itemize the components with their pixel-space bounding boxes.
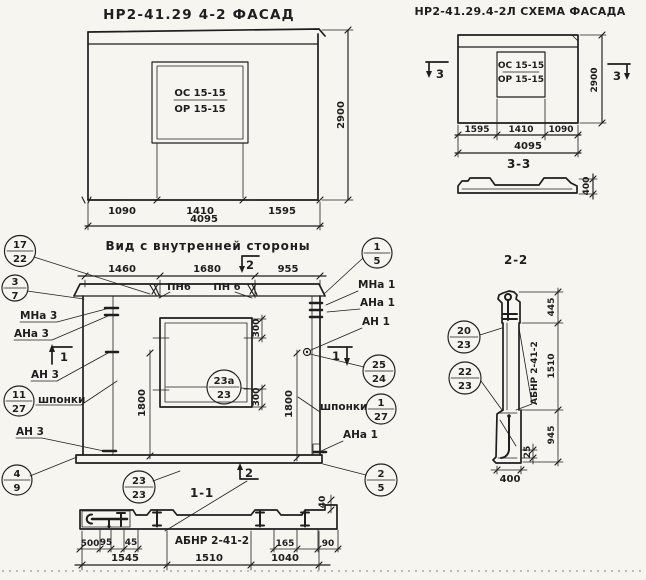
callout-num: 17 [13,240,27,251]
inner-view-title: Вид с внутренней стороны [106,239,311,253]
facade-window-label-bottom: ОР 15-15 [174,104,225,115]
dim-1545: 1545 [111,553,139,564]
dim-400: 400 [500,474,521,485]
schema-window-label-bottom: ОР 15-15 [498,75,544,85]
facade-drawing: НР2-41.29 4-2 ФАСАД ОС 15-15 ОР 15-15 10… [82,7,353,230]
callout-22-23: 22 23 [449,362,481,394]
callout-23-23: 23 23 [123,471,155,503]
schema-section-marker-right: 3 [608,64,630,83]
section-3-3: 3-3 400 [458,157,597,199]
section-2-2-leaders [480,328,502,410]
callout-1-27: 1 27 [366,394,396,424]
label-mna3: МНа 3 [20,310,57,322]
label-mna1: МНа 1 [358,279,395,291]
section-3-3-dim-400: 400 [582,177,592,196]
callout-den: 23 [457,340,471,351]
facade-dim-height: 2900 [336,101,347,129]
schema-drawing: НР2-41.29.4-2Л СХЕМА ФАСАДА ОС 15-15 ОР … [414,5,630,157]
schema-window-label-top: ОС 15-15 [498,61,544,71]
dim-445: 445 [547,298,557,317]
dim-25: 25 [523,446,533,459]
callout-num: 23 [132,476,146,487]
schema-dim-left: 1595 [464,125,489,135]
dim-45: 45 [125,538,138,548]
inner-marker-top-label: 2 [246,258,254,272]
section-1-1-part-label: АБНР 2-41-2 [175,535,249,547]
inner-view-panel-outline [74,284,325,463]
label-ana1: АНа 1 [360,297,395,309]
section-1-1-profile [80,505,337,529]
callout-den: 23 [217,390,231,401]
facade-dim-right: 1595 [268,206,296,217]
callout-den: 5 [378,483,385,494]
drawing-sheet: НР2-41.29 4-2 ФАСАД ОС 15-15 ОР 15-15 10… [0,0,646,580]
drawing-canvas: НР2-41.29 4-2 ФАСАД ОС 15-15 ОР 15-15 10… [0,0,646,580]
schema-section-marker-left: 3 [426,62,448,81]
dim-500: 500 [81,539,100,549]
section-3-3-dimension: 400 [579,174,597,199]
section-1-1-title: 1-1 [190,486,214,500]
callout-num: 1 [374,242,381,253]
dim-945: 945 [547,426,557,445]
callout-1-5: 1 5 [362,238,392,268]
inner-view-marker-top: 2 [239,256,259,273]
callout-num: 4 [14,469,21,480]
section-3-3-profile [458,178,577,193]
dim-165: 165 [276,539,295,549]
callout-num: 3 [12,277,19,288]
inner-view-window-300-dims: 300 300 [252,315,266,410]
section-1-1: 1-1 АБНР 2-41-2 40 500 95 45 [75,486,341,570]
inner-view-top-dimensions: 1460 1680 955 [78,264,326,298]
callout-den: 27 [374,412,388,423]
callout-11-27: 11 27 [4,386,34,416]
label-shponki-right: шпонки [320,401,367,413]
inner-view-window [153,318,266,407]
callout-23a-23: 23а 23 [207,370,241,404]
callout-num: 25 [372,360,386,371]
dim-90: 90 [322,539,335,549]
section-2-2-part-label: АБНР 2-41-2 [530,341,540,405]
schema-dim-total: 4095 [514,141,542,152]
callout-num: 20 [457,326,471,337]
section-3-3-title: 3-3 [507,157,531,171]
facade-dim-total: 4095 [190,214,218,225]
callout-den: 22 [13,254,27,265]
callout-den: 27 [12,404,26,415]
schema-marker-right-label: 3 [613,69,621,83]
callout-num: 1 [378,398,385,409]
inner-dim-1800-right: 1800 [284,390,295,418]
label-an3-upper: АН 3 [31,369,59,381]
inner-marker-bottom-label: 2 [245,466,253,480]
callout-4-9: 4 9 [2,465,32,495]
inner-dim-top-left: 1460 [108,264,136,275]
dim-1510: 1510 [195,553,223,564]
callout-den: 23 [458,381,472,392]
callout-num: 11 [12,390,26,401]
schema-marker-left-label: 3 [436,67,444,81]
callout-2-5: 2 5 [365,464,397,496]
facade-window: ОС 15-15 ОР 15-15 [152,62,248,143]
inner-view-marker-left: 1 [49,344,72,364]
inner-dim-top-mid: 1680 [193,264,221,275]
schema-dim-right: 1090 [548,125,573,135]
callout-den: 24 [372,374,386,385]
callout-3-7: 3 7 [2,275,28,302]
inner-dim-top-right: 955 [278,264,299,275]
callout-den: 9 [14,483,21,494]
window-dim-300-bottom: 300 [252,388,262,407]
facade-window-label-top: ОС 15-15 [174,88,225,99]
callout-17-22: 17 22 [5,236,36,267]
dim-40: 40 [318,496,328,509]
facade-dim-left: 1090 [108,206,136,217]
schema-title: НР2-41.29.4-2Л СХЕМА ФАСАДА [414,5,625,18]
inner-view-1800-right: 1800 [284,350,300,461]
dim-1510-v: 1510 [547,353,557,378]
callout-20-23: 20 23 [448,321,480,353]
dim-1040: 1040 [271,553,299,564]
section-2-2-title: 2-2 [504,253,528,267]
callout-num: 22 [458,367,472,378]
schema-dimensions: 2900 1595 1410 1090 4095 [455,32,606,157]
label-an3-lower: АН 3 [16,426,44,438]
section-2-2-profile [493,291,521,463]
callout-25-24: 25 24 [363,355,395,387]
inner-view-marker-bottom: 2 [237,463,258,480]
callout-num: 2 [378,469,385,480]
callout-den: 23 [132,490,146,501]
label-ana3: АНа 3 [14,328,49,340]
label-shponki-left: шпонки [38,394,85,406]
callout-den: 5 [374,256,381,267]
dim-95: 95 [100,538,113,548]
window-dim-300-top: 300 [252,319,262,338]
label-an1: АН 1 [362,316,390,328]
section-2-2: 2-2 АБНР 2-41-2 445 1510 945 25 [480,253,563,485]
inner-view-labels-left: МНа 3 АНа 3 АН 3 шпонки АН 3 [14,309,117,451]
label-ana1-lower: АНа 1 [343,429,378,441]
schema-dim-height: 2900 [590,67,600,92]
inner-view-1800-left: 1800 [137,350,153,459]
inner-dim-1800-left: 1800 [137,389,148,417]
section-1-1-rebar [87,512,309,529]
schema-window: ОС 15-15 ОР 15-15 [497,52,545,97]
callout-num: 23а [214,376,235,387]
schema-dim-mid: 1410 [508,125,533,135]
inner-marker-left-label: 1 [60,350,68,364]
facade-title: НР2-41.29 4-2 ФАСАД [103,7,295,23]
callout-den: 7 [12,291,19,302]
